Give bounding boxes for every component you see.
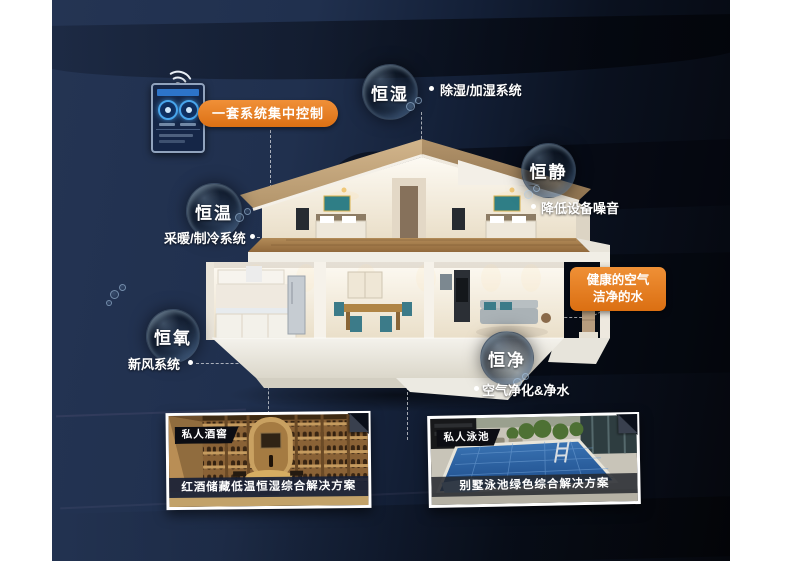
tiny-bubble [235,213,244,222]
bubble-label: 恒氧 [154,324,192,349]
tiny-bubble [110,290,119,299]
card-tag: 私人泳池 [436,429,500,447]
tiny-bubble [533,185,540,192]
bullet-dot [474,386,479,391]
callout-line2: 洁净的水 [574,289,662,306]
folded-corner-flap [618,414,637,433]
device-reading [180,123,196,126]
callout-box: 健康的空气 洁净的水 [570,267,666,311]
card-caption: 红酒储藏低温恒湿综合解决方案 [169,476,368,498]
bullet-dot [531,204,536,209]
background-streak [52,496,730,561]
bullet-dot [429,86,434,91]
tiny-bubble [415,97,422,104]
card-wine-cellar[interactable]: 红酒储藏低温恒湿综合解决方案 私人酒窖 [165,411,371,510]
thermostat-dial-icon [158,100,178,120]
control-panel-device [151,83,205,153]
tiny-bubble [522,373,529,380]
tiny-bubble [119,284,126,291]
feature-desc-hengyang: 新风系统 [128,354,180,373]
card-pool[interactable]: 别墅泳池绿色综合解决方案 私人泳池 [427,412,641,508]
bubble-label: 恒温 [195,199,233,224]
tiny-bubble [406,102,415,111]
bubble-label: 恒净 [488,346,526,371]
card-caption: 别墅泳池绿色综合解决方案 [431,473,637,497]
central-control-button[interactable]: 一套系统集中控制 [198,100,338,127]
tiny-bubble [524,190,533,199]
promo-infographic: 一套系统集中控制 恒湿 恒静 恒温 恒氧 恒净 除湿/加湿系统 降低设备噪音 采… [0,0,790,561]
humidity-dial-icon [179,100,199,120]
device-reading [159,134,193,137]
bullet-dot [250,234,255,239]
bubble-label: 恒静 [530,158,568,183]
feature-desc-hengshi: 除湿/加湿系统 [440,80,522,99]
feature-desc-hengjin: 空气净化&净水 [482,380,569,399]
tiny-bubble [106,300,112,306]
feature-desc-hengjing: 降低设备噪音 [541,198,619,217]
bubble-label: 恒湿 [371,80,409,105]
folded-corner-flap [350,413,369,432]
card-tag: 私人酒窖 [175,426,239,444]
device-divider [156,129,200,130]
bullet-dot [188,360,193,365]
device-reading [159,140,185,143]
bubble-hengshi: 恒湿 [362,64,418,120]
tiny-bubble [244,208,251,215]
feature-desc-hengwen: 采暖/制冷系统 [164,228,246,247]
callout-line1: 健康的空气 [574,272,662,289]
device-screen-header [157,89,199,96]
device-reading [159,123,175,126]
